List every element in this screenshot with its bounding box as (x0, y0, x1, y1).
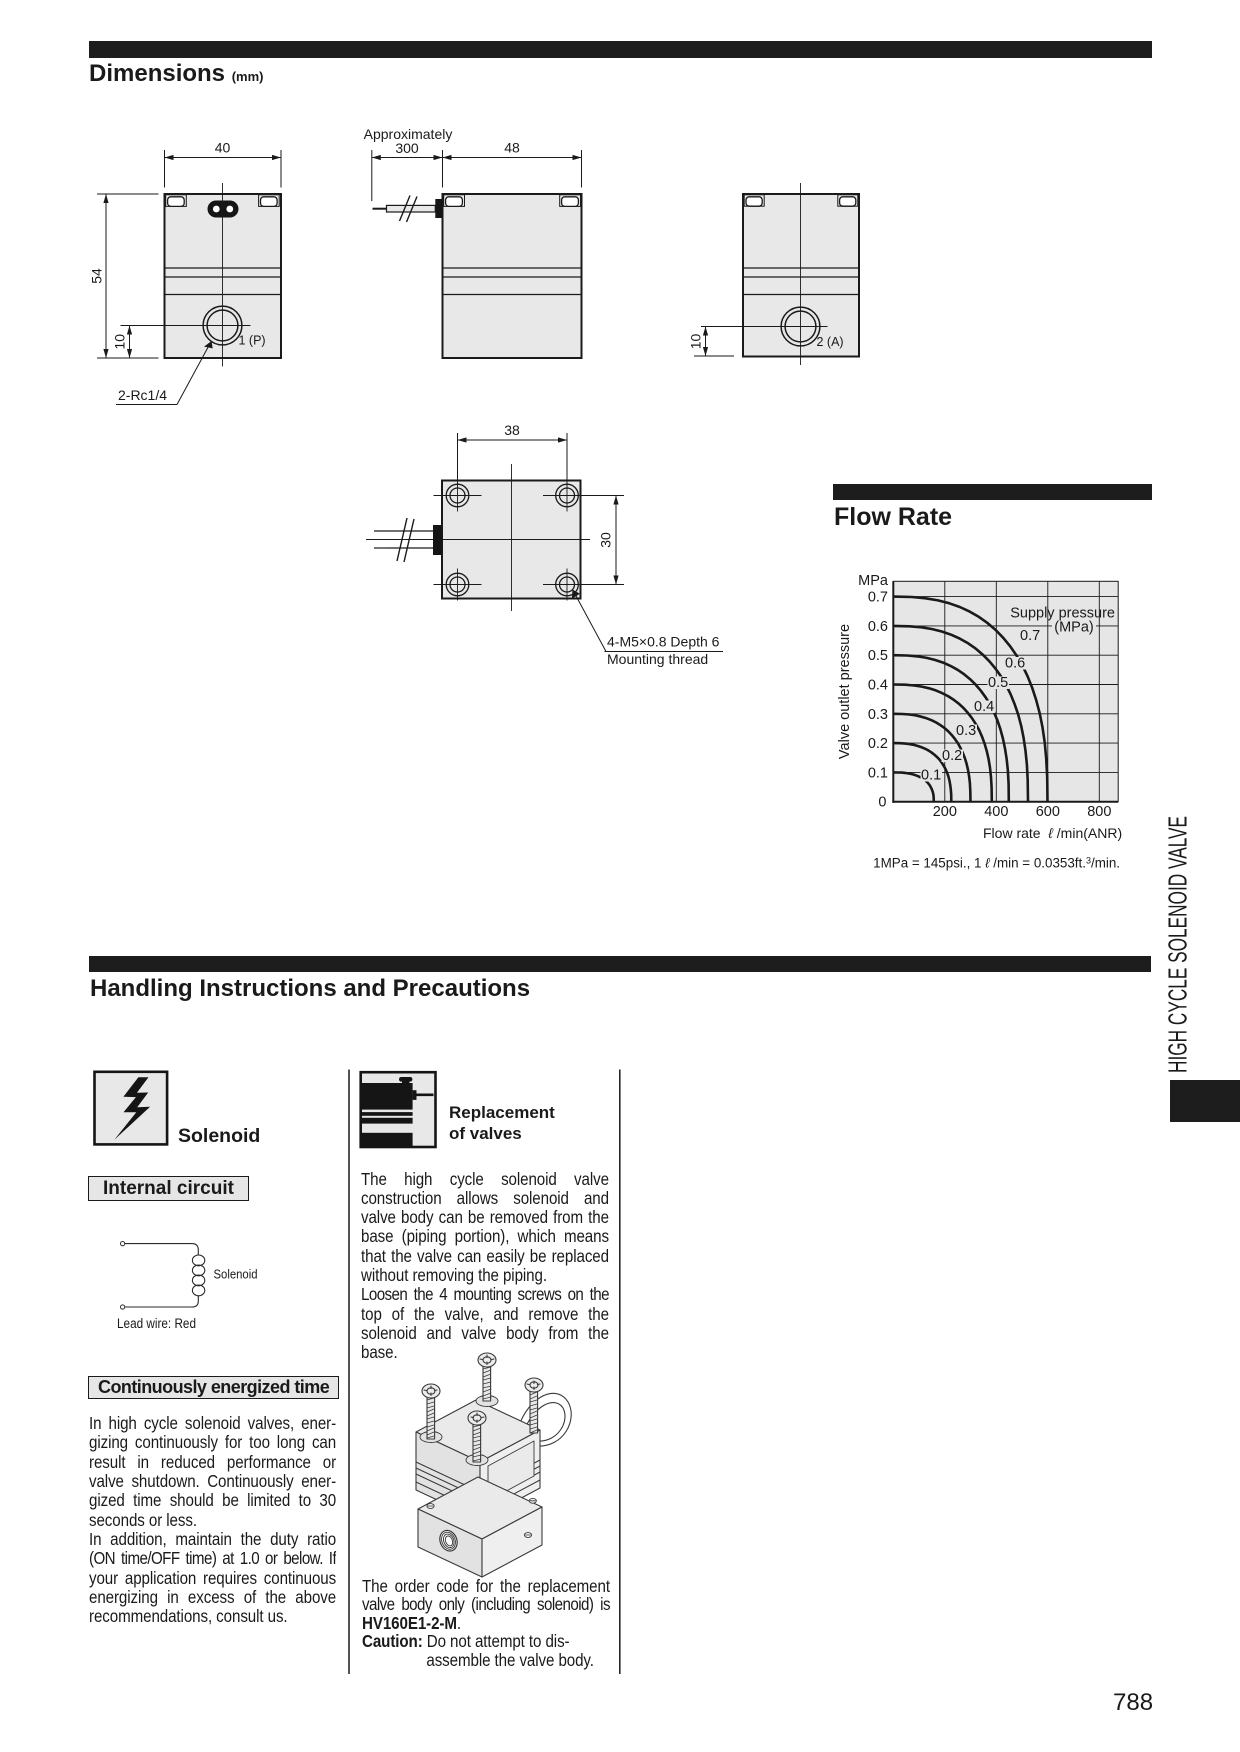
svg-text:0.1: 0.1 (921, 768, 941, 784)
svg-text:0.6: 0.6 (1005, 656, 1025, 672)
svg-text:0.3: 0.3 (868, 707, 888, 723)
svg-text:0: 0 (878, 795, 886, 811)
svg-text:600: 600 (1036, 804, 1060, 820)
svg-text:Solenoid: Solenoid (214, 1267, 258, 1282)
svg-text:2 (A): 2 (A) (817, 335, 844, 349)
svg-text:0.4: 0.4 (974, 699, 994, 715)
svg-text:MPa: MPa (858, 573, 889, 589)
svg-text:(MPa): (MPa) (1054, 620, 1093, 636)
svg-text:300: 300 (395, 140, 419, 156)
svg-text:10: 10 (688, 334, 704, 350)
svg-text:0.2: 0.2 (942, 748, 962, 764)
svg-text:1 (P): 1 (P) (239, 334, 266, 348)
svg-text:48: 48 (504, 140, 520, 156)
svg-text:Valve outlet pressure: Valve outlet pressure (837, 624, 853, 759)
svg-text:0.5: 0.5 (988, 675, 1008, 691)
svg-text:200: 200 (933, 804, 957, 820)
svg-text:1MPa = 145psi., 1 ℓ /min = 0.0: 1MPa = 145psi., 1 ℓ /min = 0.0353ft.3/mi… (873, 856, 1120, 871)
svg-text:400: 400 (984, 804, 1008, 820)
svg-text:4-M5×0.8 Depth 6: 4-M5×0.8 Depth 6 (607, 634, 720, 650)
svg-text:54: 54 (89, 268, 105, 284)
svg-text:Mounting thread: Mounting thread (607, 651, 708, 667)
svg-text:HIGH CYCLE SOLENOID VALVE: HIGH CYCLE SOLENOID VALVE (1163, 816, 1193, 1073)
svg-text:0.4: 0.4 (868, 678, 888, 694)
svg-text:40: 40 (215, 140, 231, 156)
svg-text:Flow rate ℓ /min(ANR): Flow rate ℓ /min(ANR) (983, 825, 1122, 841)
svg-text:0.7: 0.7 (868, 590, 888, 606)
svg-text:0.2: 0.2 (868, 736, 888, 752)
svg-text:10: 10 (112, 334, 128, 350)
svg-text:38: 38 (504, 422, 520, 438)
svg-text:2-Rc1/4: 2-Rc1/4 (118, 387, 167, 403)
svg-text:800: 800 (1087, 804, 1111, 820)
svg-text:0.6: 0.6 (868, 619, 888, 635)
svg-text:0.3: 0.3 (956, 723, 976, 739)
svg-text:0.1: 0.1 (868, 765, 888, 781)
svg-text:0.7: 0.7 (1020, 628, 1040, 644)
svg-text:0.5: 0.5 (868, 648, 888, 664)
svg-text:30: 30 (598, 532, 614, 548)
